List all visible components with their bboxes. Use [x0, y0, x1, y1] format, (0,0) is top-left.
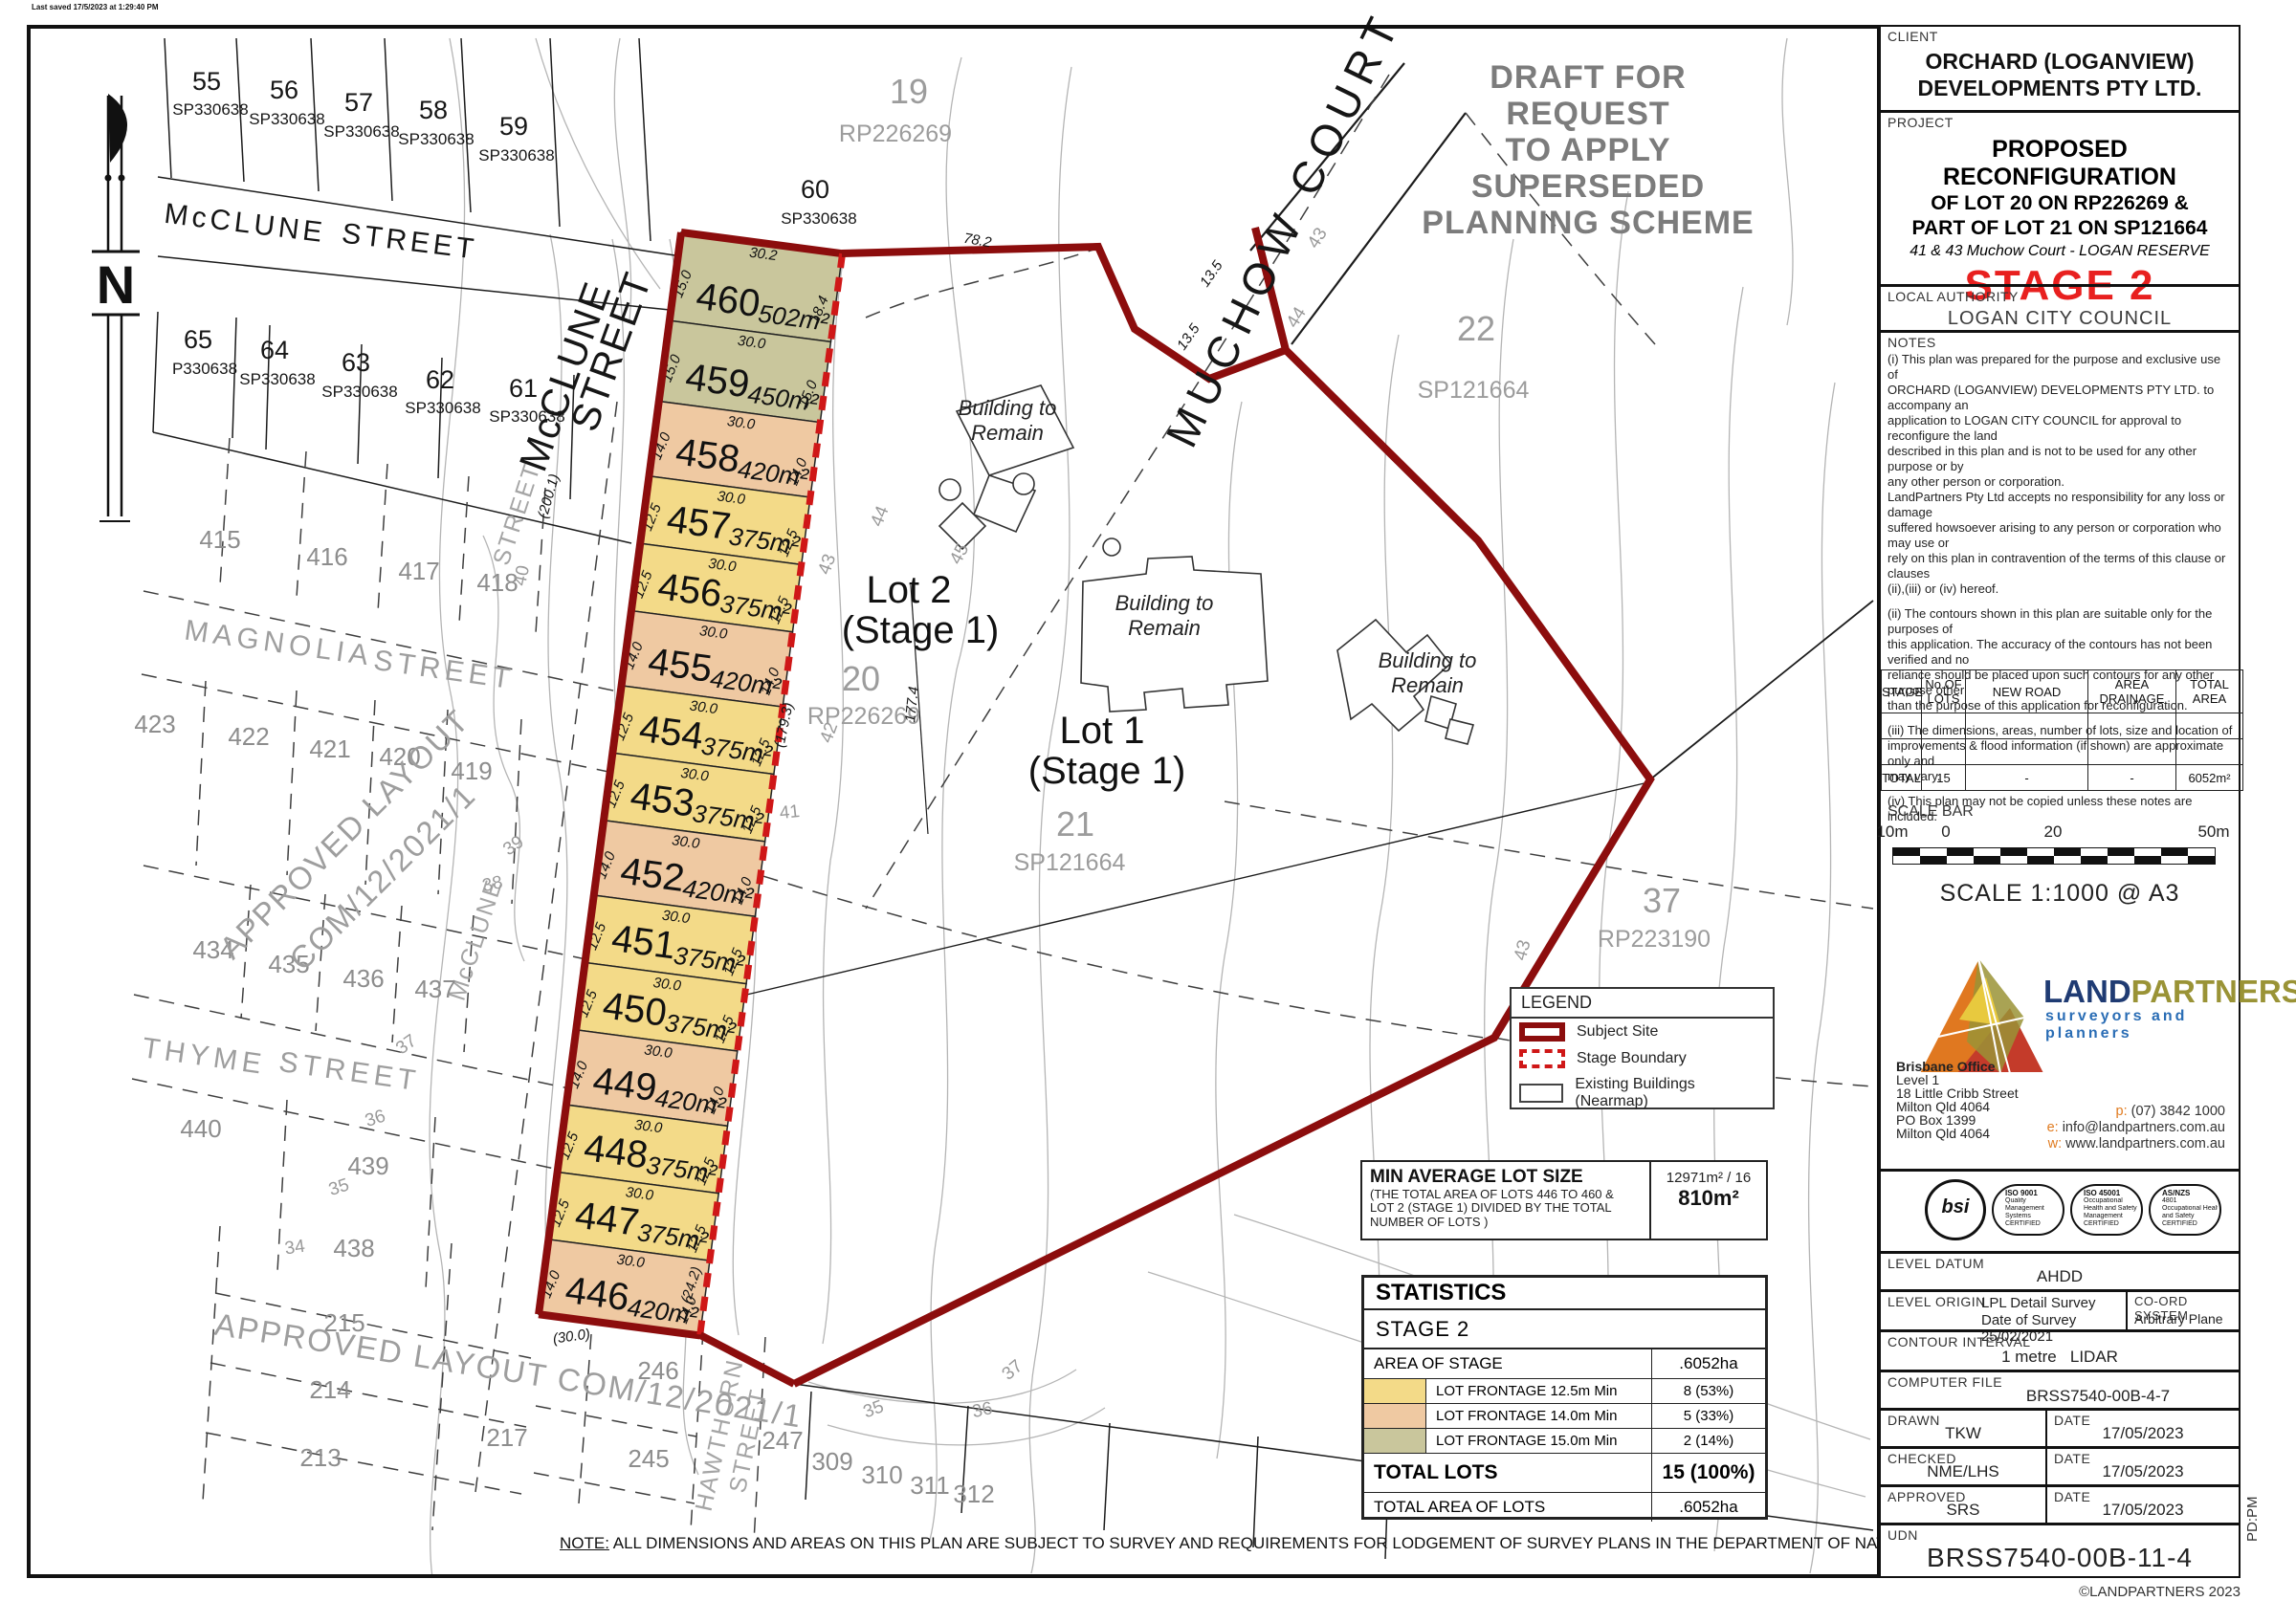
- map-label: 416: [306, 542, 347, 571]
- map-label: 415: [199, 525, 240, 554]
- legend-box: LEGEND Subject SiteStage BoundaryExistin…: [1510, 987, 1775, 1109]
- svg-text:460: 460: [694, 275, 762, 325]
- stage-table-total-value: -: [2088, 765, 2176, 791]
- min-lot-title: MIN AVERAGE LOT SIZE: [1370, 1167, 1642, 1188]
- contour-interval-row: CONTOUR INTERVAL 1 metre LIDAR: [1881, 1329, 2239, 1370]
- map-label: Remain: [971, 421, 1044, 445]
- svg-text:450: 450: [601, 984, 670, 1034]
- plot-stamp: Last saved 17/5/2023 at 1:29:40 PM: [32, 3, 159, 11]
- client-name-2: DEVELOPMENTS PTY LTD.: [1881, 75, 2239, 101]
- frontage-color-swatch: [1364, 1429, 1426, 1453]
- min-lot-value: 810m²: [1651, 1186, 1766, 1211]
- map-label: 36: [363, 1107, 388, 1132]
- map-label: McCLUNE: [163, 198, 327, 249]
- draft-watermark-line: DRAFT FOR REQUEST: [1416, 59, 1760, 132]
- svg-text:451: 451: [609, 917, 678, 967]
- notes-label: NOTES: [1888, 335, 1936, 350]
- map-label: SP330638: [323, 122, 399, 141]
- project-address: 41 & 43 Muchow Court - LOGAN RESERVE: [1881, 243, 2239, 260]
- frontage-value: 8 (53%): [1651, 1379, 1765, 1403]
- frontage-value: 5 (33%): [1651, 1404, 1765, 1428]
- map-label: SP330638: [321, 383, 397, 401]
- map-label: 37: [392, 1031, 420, 1059]
- map-label: 213: [299, 1443, 341, 1472]
- svg-text:447: 447: [573, 1195, 642, 1244]
- stage-table-header: AREA DRAINAGE: [2088, 670, 2176, 713]
- map-label: 58: [419, 96, 448, 124]
- drawn-row: DRAWN TKW DATE 17/05/2023: [1881, 1408, 2239, 1446]
- map-label: Lot 1: [1060, 710, 1145, 752]
- client-label: CLIENT: [1888, 29, 1938, 44]
- map-label: P330638: [172, 360, 237, 378]
- svg-text:459: 459: [683, 356, 752, 406]
- map-label: 59: [499, 112, 528, 141]
- map-label: 440: [180, 1114, 221, 1143]
- draft-watermark-line: PLANNING SCHEME: [1416, 205, 1760, 241]
- map-label: (Stage 1): [842, 609, 1000, 651]
- stage-table-total-label: TOTAL: [1882, 765, 1922, 791]
- map-label: 41: [779, 801, 801, 823]
- frontage-color-swatch: [1364, 1404, 1426, 1428]
- authority-section: LOCAL AUTHORITY LOGAN CITY COUNCIL: [1881, 284, 2239, 330]
- subject-swatch-icon: [1519, 1022, 1565, 1042]
- stage-table-header: NEW ROAD: [1966, 670, 2088, 713]
- draft-watermark-line: SUPERSEDED: [1416, 168, 1760, 205]
- stage-table-header: STAGE: [1882, 670, 1922, 713]
- svg-text:449: 449: [590, 1060, 659, 1109]
- map-label: SP121664: [1014, 849, 1126, 876]
- map-label: 44: [1283, 303, 1311, 331]
- svg-text:455: 455: [646, 641, 715, 691]
- map-label: RP226269: [839, 121, 952, 147]
- map-label: 44: [867, 503, 894, 530]
- copyright-text: ©LANDPARTNERS 2023: [2038, 1584, 2241, 1600]
- map-label: 35: [861, 1396, 887, 1422]
- stage-table-total-value: 15: [1922, 765, 1966, 791]
- scale-section: SCALE BAR 10m02050m SCALE 1:1000 @ A3: [1881, 798, 2239, 926]
- map-label: 439: [347, 1151, 388, 1180]
- scale-ticks: 10m02050m: [1892, 822, 2218, 842]
- map-label: 34: [283, 1237, 306, 1260]
- north-letter: N: [97, 254, 135, 315]
- map-label: 13.5: [1197, 257, 1226, 290]
- map-label: SP330638: [781, 209, 856, 228]
- svg-text:453: 453: [628, 775, 696, 824]
- scale-bar: [1892, 847, 2216, 865]
- map-label: (Stage 1): [1028, 750, 1186, 792]
- map-label: 421: [309, 735, 350, 763]
- udn-value: BRSS7540-00B-11-4: [1881, 1543, 2239, 1573]
- project-line1: PROPOSED RECONFIGURATION: [1881, 136, 2239, 191]
- map-label: 312: [953, 1480, 994, 1508]
- map-label: 62: [426, 365, 454, 394]
- map-label: SP330638: [249, 110, 324, 128]
- map-label: 55: [192, 67, 221, 96]
- stage-table-header: TOTAL AREA: [2176, 670, 2243, 713]
- scale-tick-label: 50m: [2197, 822, 2229, 842]
- map-label: SP330638: [398, 130, 474, 148]
- approved-row: APPROVED SRS DATE 17/05/2023: [1881, 1484, 2239, 1523]
- map-label: 37: [999, 1356, 1027, 1385]
- map-label: 217: [486, 1423, 527, 1452]
- map-label: STREET: [340, 218, 478, 266]
- map-label: SP330638: [172, 100, 248, 119]
- legend-item-stage: Stage Boundary: [1512, 1045, 1773, 1072]
- svg-text:446: 446: [563, 1269, 631, 1319]
- min-lot-calc: 12971m² / 16: [1651, 1170, 1766, 1186]
- office-address: Brisbane OfficeLevel 118 Little Cribb St…: [1896, 1060, 2019, 1140]
- contour-interval-value: 1 metre LIDAR: [1881, 1348, 2239, 1367]
- total-lots-label: TOTAL LOTS: [1364, 1454, 1651, 1492]
- computer-file-row: COMPUTER FILE BRSS7540-00B-4-7: [1881, 1370, 2239, 1408]
- level-origin-row: LEVEL ORIGIN LPL Detail Survey Date of S…: [1881, 1289, 2239, 1329]
- title-block: CLIENT ORCHARD (LOGANVIEW) DEVELOPMENTS …: [1877, 27, 2239, 1576]
- map-label: Remain: [1391, 673, 1464, 697]
- map-label: SP330638: [489, 407, 564, 426]
- map-label: Building to: [1379, 648, 1477, 672]
- svg-text:458: 458: [673, 430, 742, 480]
- map-label: 40: [510, 563, 534, 587]
- map-label: SP121664: [1418, 377, 1530, 404]
- frontage-color-swatch: [1364, 1379, 1426, 1403]
- stage-table-total-value: 6052m²: [2176, 765, 2243, 791]
- stage-table: STAGENo.OF LOTSNEW ROADAREA DRAINAGETOTA…: [1881, 669, 2243, 791]
- frontage-row: LOT FRONTAGE 12.5m Min8 (53%): [1364, 1379, 1765, 1404]
- statistics-title: STATISTICS: [1364, 1278, 1765, 1310]
- map-label: 43: [814, 552, 840, 578]
- notes-section: NOTES (i) This plan was prepared for the…: [1881, 330, 2239, 669]
- area-of-stage-value: .6052ha: [1651, 1349, 1765, 1378]
- map-label: 37: [1643, 881, 1681, 920]
- map-label: 63: [342, 348, 370, 377]
- map-label: 65: [184, 325, 212, 354]
- frontage-row: LOT FRONTAGE 15.0m Min2 (14%): [1364, 1429, 1765, 1454]
- map-label: 57: [344, 88, 373, 117]
- checked-row: CHECKED NME/LHS DATE 17/05/2023: [1881, 1446, 2239, 1484]
- map-label: 38: [480, 872, 504, 896]
- svg-text:448: 448: [582, 1127, 651, 1176]
- map-label: 417: [398, 557, 439, 585]
- total-area-label: TOTAL AREA OF LOTS: [1364, 1493, 1651, 1522]
- map-label: 438: [333, 1234, 374, 1262]
- draft-watermark-line: TO APPLY: [1416, 132, 1760, 168]
- stage-swatch-icon: [1519, 1049, 1565, 1068]
- existing-swatch-icon: [1519, 1084, 1563, 1103]
- map-label: Building to: [959, 396, 1057, 420]
- north-arrow-icon: N: [92, 94, 140, 521]
- map-label: 22: [1457, 309, 1495, 348]
- bsi-mark-icon: bsi: [1925, 1179, 1986, 1240]
- bottom-note-label: NOTE:: [560, 1534, 609, 1552]
- scale-tick-label: 20: [2044, 822, 2063, 842]
- map-label: 39: [499, 832, 527, 860]
- certification-section: bsiISO 9001QualityManagementSystemsCERTI…: [1881, 1169, 2239, 1251]
- office-contacts: p: (07) 3842 1000e: info@landpartners.co…: [2047, 1104, 2225, 1152]
- map-label: 56: [270, 76, 298, 104]
- statistics-stage: STAGE 2: [1364, 1310, 1765, 1349]
- legend-item-existing: Existing Buildings (Nearmap): [1512, 1072, 1773, 1114]
- udn-row: UDN BRSS7540-00B-11-4: [1881, 1523, 2239, 1576]
- total-lots-value: 15 (100%): [1651, 1454, 1765, 1492]
- survey-plan-page: 30.2460502m²15.018.430.0459450m²15.015.0…: [0, 0, 2296, 1623]
- min-average-lot-size-box: MIN AVERAGE LOT SIZE (THE TOTAL AREA OF …: [1360, 1160, 1768, 1240]
- stage-table-total-value: -: [1966, 765, 2088, 791]
- map-label: 311: [910, 1471, 949, 1500]
- map-label: 61: [509, 374, 538, 403]
- frontage-value: 2 (14%): [1651, 1429, 1765, 1453]
- map-label: 310: [861, 1460, 902, 1489]
- map-label: 214: [309, 1375, 350, 1404]
- legend-title: LEGEND: [1512, 989, 1773, 1019]
- frontage-label: LOT FRONTAGE 14.0m Min: [1426, 1404, 1651, 1428]
- svg-text:454: 454: [637, 708, 706, 757]
- map-label: 422: [228, 722, 269, 751]
- scale-caption: SCALE 1:1000 @ A3: [1881, 880, 2239, 908]
- legend-item-label: Stage Boundary: [1577, 1050, 1687, 1067]
- total-area-value: .6052ha: [1651, 1493, 1765, 1522]
- draft-watermark: DRAFT FOR REQUESTTO APPLYSUPERSEDEDPLANN…: [1416, 59, 1760, 241]
- map-label: Remain: [1128, 616, 1201, 640]
- map-label: THYME: [141, 1032, 268, 1081]
- landpartners-tagline: surveyors and planners: [2045, 1008, 2239, 1042]
- map-label: 20: [842, 659, 880, 698]
- scale-tick-label: 0: [1941, 822, 1950, 842]
- map-label: MUCHOW COURT: [1157, 3, 1411, 455]
- legend-item-label: Existing Buildings (Nearmap): [1575, 1076, 1765, 1110]
- scale-tick-label: 10m: [1876, 822, 1908, 842]
- project-section: PROJECT PROPOSED RECONFIGURATION OF LOT …: [1881, 110, 2239, 284]
- client-name-1: ORCHARD (LOGANVIEW): [1881, 48, 2239, 75]
- coord-system-value: Arbitrary Plane: [2134, 1311, 2223, 1327]
- map-label: (30.0): [552, 1326, 591, 1347]
- map-label: 64: [260, 336, 289, 364]
- map-label: SP330638: [405, 399, 480, 417]
- landpartners-wordmark: LANDPARTNERS: [2043, 974, 2296, 1010]
- stage-table-header: No.OF LOTS: [1922, 670, 1966, 713]
- map-label: 309: [811, 1447, 852, 1476]
- certification-badge: ISO 45001OccupationalHealth and SafetyMa…: [2070, 1184, 2143, 1236]
- map-label: RP223190: [1598, 926, 1711, 953]
- frontage-row: LOT FRONTAGE 14.0m Min5 (33%): [1364, 1404, 1765, 1429]
- map-label: Lot 2: [867, 569, 952, 611]
- svg-text:452: 452: [618, 850, 687, 900]
- certification-badge: ISO 9001QualityManagementSystemsCERTIFIE…: [1992, 1184, 2064, 1236]
- stage-table-section: STAGENo.OF LOTSNEW ROADAREA DRAINAGETOTA…: [1881, 669, 2239, 798]
- pd-pm-text: PD:PM: [2244, 1496, 2261, 1542]
- svg-text:456: 456: [655, 565, 724, 615]
- project-label: PROJECT: [1888, 115, 1954, 130]
- map-label: Building to: [1115, 591, 1214, 615]
- map-label: 437: [414, 975, 455, 1003]
- map-label: 19: [890, 72, 928, 111]
- frontage-label: LOT FRONTAGE 15.0m Min: [1426, 1429, 1651, 1453]
- level-datum-row: LEVEL DATUM AHDD: [1881, 1251, 2239, 1289]
- authority-value: LOGAN CITY COUNCIL: [1881, 308, 2239, 330]
- client-section: CLIENT ORCHARD (LOGANVIEW) DEVELOPMENTS …: [1881, 27, 2239, 110]
- area-of-stage-label: AREA OF STAGE: [1364, 1349, 1651, 1378]
- map-label: 36: [970, 1398, 994, 1422]
- map-label: 43: [1511, 938, 1535, 963]
- map-label: MAGNOLIA: [183, 614, 375, 671]
- map-label: SP330638: [478, 146, 554, 164]
- legend-item-label: Subject Site: [1577, 1023, 1658, 1041]
- map-label: SP330638: [239, 370, 315, 388]
- project-line3: PART OF LOT 21 ON SP121664: [1881, 216, 2239, 241]
- logo-section: LANDPARTNERS surveyors and planners Bris…: [1881, 926, 2239, 1169]
- scale-bar-label: SCALE BAR: [1888, 803, 1974, 821]
- map-label: 45: [946, 540, 973, 568]
- computer-file-value: BRSS7540-00B-4-7: [1957, 1387, 2239, 1406]
- frontage-label: LOT FRONTAGE 12.5m Min: [1426, 1379, 1651, 1403]
- map-label: 423: [134, 710, 175, 738]
- svg-text:457: 457: [665, 498, 734, 548]
- legend-item-subject: Subject Site: [1512, 1019, 1773, 1045]
- certification-badge: AS/NZS4801Occupational Healthand SafetyC…: [2149, 1184, 2221, 1236]
- note-paragraph: (i) This plan was prepared for the purpo…: [1888, 352, 2234, 597]
- map-label: 21: [1056, 804, 1094, 844]
- map-label: 60: [801, 175, 829, 204]
- project-line2: OF LOT 20 ON RP226269 &: [1881, 191, 2239, 216]
- map-label: APPROVED LAYOUT COM/12/2021/1: [212, 1306, 806, 1435]
- map-label: 436: [342, 964, 384, 993]
- statistics-box: STATISTICS STAGE 2 AREA OF STAGE .6052ha…: [1361, 1275, 1768, 1520]
- min-lot-desc: (THE TOTAL AREA OF LOTS 446 TO 460 & LOT…: [1370, 1188, 1642, 1229]
- map-label: 245: [628, 1444, 669, 1473]
- authority-label: LOCAL AUTHORITY: [1888, 289, 2019, 304]
- level-origin-value: LPL Detail Survey: [1981, 1295, 2096, 1311]
